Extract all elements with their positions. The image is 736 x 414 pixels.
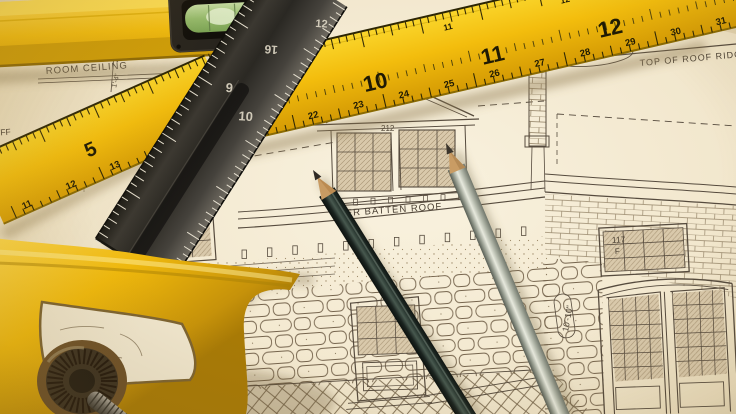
pencil-dark-lead (310, 168, 321, 180)
edge-label-off: OFF (0, 127, 11, 138)
steel-num-16: 16 (264, 42, 279, 57)
photo-scene: 3'-6" TOP ROOM CEILING 1'-4" 1'-4" OFF O… (0, 0, 736, 414)
steel-num-9: 9 (225, 80, 233, 96)
steel-num-12: 12 (315, 18, 328, 31)
scene-canvas: 3'-6" TOP ROOM CEILING 1'-4" 1'-4" OFF O… (0, 0, 736, 414)
batten-roof-label: ER BATTEN ROOF (345, 201, 442, 219)
window-117 (599, 224, 689, 277)
steel-num-10: 10 (238, 108, 254, 124)
french-doors (598, 277, 736, 414)
window-letter-label: F (615, 247, 620, 256)
window-number-label: 117 (612, 234, 626, 245)
